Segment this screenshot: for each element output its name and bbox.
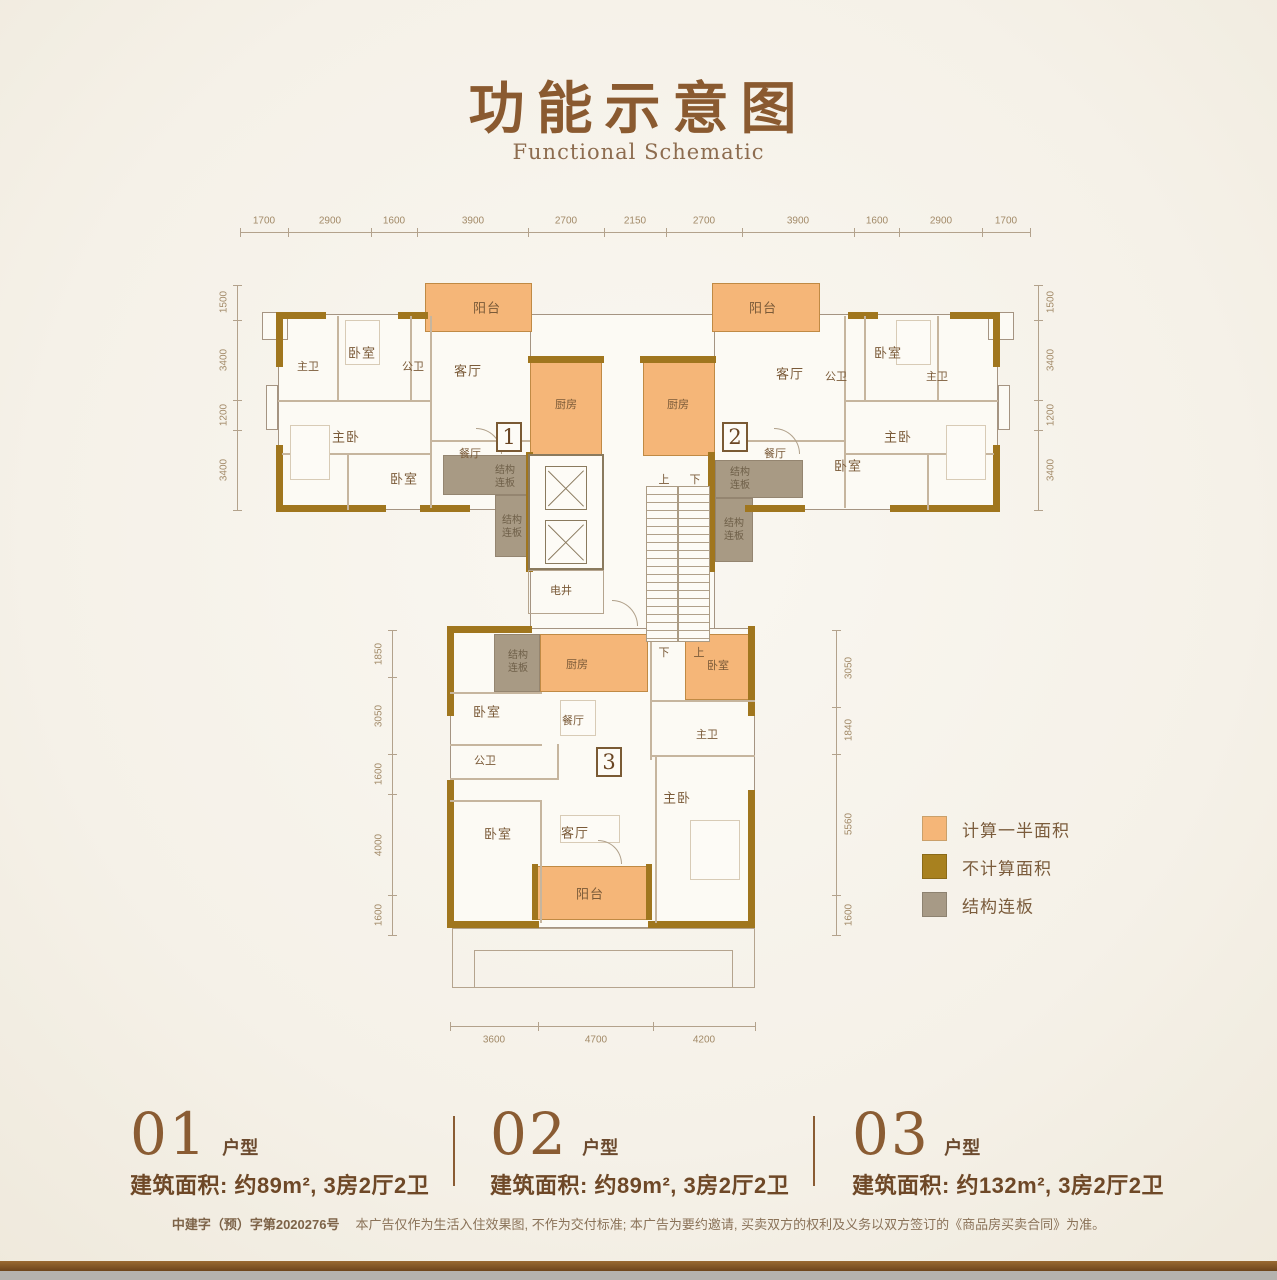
connector-zone: [715, 460, 803, 498]
dimension-line: [237, 285, 238, 510]
connector-label: 结构 连板: [502, 514, 522, 540]
dim-label: 2150: [624, 216, 646, 227]
legend-swatch-connector: [922, 892, 947, 917]
dimension-line: [240, 232, 1030, 233]
page: 功能示意图 Functional Schematic: [0, 0, 1277, 1280]
wall: [993, 312, 1000, 367]
furniture: [946, 425, 986, 480]
room-label-kitchen: 厨房: [555, 396, 577, 412]
wall: [447, 626, 532, 633]
dimension-line: [1038, 285, 1039, 510]
furniture: [690, 820, 740, 880]
page-title: 功能示意图: [0, 64, 1277, 145]
unit-marker-2: 2: [722, 422, 748, 452]
dim-label: 1500: [219, 291, 230, 313]
room-label-dining: 餐厅: [459, 445, 481, 461]
unit-info-01: 01 户型 建筑面积: 约89m², 3房2厅2卫: [130, 1106, 460, 1200]
unit-type-suffix: 户型: [582, 1138, 618, 1158]
wall: [420, 505, 470, 512]
partition: [655, 757, 657, 923]
dim-label: 1200: [219, 404, 230, 426]
partition: [450, 692, 542, 694]
stairs-down-label: 下: [659, 644, 670, 660]
disclaimer-text: 本广告仅作为生活入住效果图, 不作为交付标准; 本广告为要约邀请, 买卖双方的权…: [355, 1214, 1105, 1233]
dim-label: 1840: [844, 719, 855, 741]
dim-label: 1850: [374, 643, 385, 665]
wall: [890, 505, 998, 512]
legend-label-connector: 结构连板: [962, 893, 1034, 918]
stairs-up-label: 上: [659, 471, 670, 487]
partition: [337, 316, 339, 402]
partition: [557, 744, 559, 780]
unit-info-02: 02 户型 建筑面积: 约89m², 3房2厅2卫: [490, 1106, 820, 1200]
room-label-kitchen: 厨房: [566, 656, 588, 672]
room-label-dining: 餐厅: [562, 712, 584, 728]
dim-label: 1600: [844, 904, 855, 926]
unit-area-info: 建筑面积: 约132m², 3房2厅2卫: [852, 1168, 1182, 1200]
dim-label: 3400: [1046, 349, 1057, 371]
unit-area-info: 建筑面积: 约89m², 3房2厅2卫: [490, 1168, 820, 1200]
dim-label: 3050: [374, 705, 385, 727]
dim-label: 2700: [693, 216, 715, 227]
room-label-public-bath: 公卫: [825, 368, 847, 384]
dim-label: 3900: [462, 216, 484, 227]
room-label-bedroom: 卧室: [874, 343, 902, 362]
room-label-master-bedroom: 主卧: [332, 427, 360, 446]
partition: [650, 755, 755, 757]
room-label-bedroom: 卧室: [484, 824, 512, 843]
partition: [844, 316, 846, 508]
dim-label: 1700: [253, 216, 275, 227]
dim-label: 3400: [1046, 459, 1057, 481]
unit-number: 03: [852, 1100, 930, 1168]
stairs-down-label: 下: [690, 471, 701, 487]
room-label-living: 客厅: [454, 361, 482, 380]
wall: [648, 921, 755, 928]
dim-label: 1600: [383, 216, 405, 227]
dim-label: 4000: [374, 834, 385, 856]
wall: [745, 505, 805, 512]
connector-label: 结构 连板: [730, 466, 750, 492]
stair-rail: [677, 486, 679, 642]
kitchen-zone: [540, 634, 648, 692]
partition: [278, 400, 430, 402]
dim-label: 2900: [930, 216, 952, 227]
partition: [540, 800, 542, 923]
wall: [640, 356, 716, 363]
wall: [447, 921, 539, 928]
partition: [650, 700, 755, 702]
partition: [846, 400, 998, 402]
room-label-living: 客厅: [561, 823, 589, 842]
bay-window: [266, 385, 278, 430]
room-label-public-bath: 公卫: [402, 358, 424, 374]
dim-label: 3900: [787, 216, 809, 227]
divider: [813, 1116, 815, 1186]
dimension-ticks: [450, 1022, 451, 1031]
partition: [430, 316, 432, 508]
wall: [848, 312, 878, 319]
bay-window: [998, 385, 1010, 430]
wall: [528, 356, 604, 363]
unit-area-info: 建筑面积: 约89m², 3房2厅2卫: [130, 1168, 460, 1200]
dim-label: 2900: [319, 216, 341, 227]
elevator-icon: [545, 520, 587, 564]
wall: [276, 445, 283, 512]
wall: [447, 780, 454, 928]
room-label-bedroom: 卧室: [390, 469, 418, 488]
room-label-balcony: 阳台: [576, 884, 604, 903]
dim-label: 2700: [555, 216, 577, 227]
bottom-frame-bar: [0, 1261, 1277, 1271]
bottom-edge: [0, 1271, 1277, 1280]
wall: [993, 445, 1000, 512]
connector-label: 结构 连板: [495, 464, 515, 490]
dim-label: 5560: [844, 813, 855, 835]
terrace-outline: [474, 950, 733, 988]
dimension-ticks: [240, 228, 241, 237]
legend-swatch-no-count: [922, 854, 947, 879]
room-label-master-bath: 主卫: [696, 726, 718, 742]
connector-zone: [443, 455, 530, 495]
electric-shaft-label: 电井: [550, 582, 572, 598]
partition: [864, 316, 866, 402]
legend-label-half-area: 计算一半面积: [962, 817, 1070, 842]
unit-number: 02: [490, 1100, 568, 1168]
wall: [532, 864, 538, 920]
wall: [276, 505, 386, 512]
page-subtitle: Functional Schematic: [0, 140, 1277, 164]
room-label-bedroom: 卧室: [707, 657, 729, 673]
furniture: [290, 425, 330, 480]
room-label-living: 客厅: [776, 364, 804, 383]
legend-label-no-count: 不计算面积: [962, 855, 1052, 880]
room-label-master-bedroom: 主卧: [884, 427, 912, 446]
connector-label: 结构 连板: [508, 649, 528, 675]
dim-label: 3050: [844, 657, 855, 679]
room-label-bedroom: 卧室: [834, 456, 862, 475]
wall: [950, 312, 998, 319]
dim-label: 4200: [693, 1035, 715, 1046]
wall: [398, 312, 428, 319]
permit-number: 中建字（预）字第2020276号: [172, 1214, 340, 1233]
room-label-master-bath: 主卫: [297, 358, 319, 374]
dim-label: 1500: [1046, 291, 1057, 313]
room-label-public-bath: 公卫: [474, 752, 496, 768]
unit-number: 01: [130, 1100, 208, 1168]
partition: [927, 453, 929, 510]
dimension-ticks: [233, 285, 242, 286]
dimension-ticks: [832, 630, 841, 631]
unit-info-03: 03 户型 建筑面积: 约132m², 3房2厅2卫: [852, 1106, 1182, 1200]
dimension-ticks: [1034, 285, 1043, 286]
room-label-bedroom: 卧室: [348, 343, 376, 362]
partition: [450, 778, 557, 780]
wall: [276, 312, 326, 319]
elevator-icon: [545, 466, 587, 510]
dimension-line: [450, 1026, 755, 1027]
dimension-line: [836, 630, 837, 935]
wall: [447, 626, 454, 716]
dim-label: 1200: [1046, 404, 1057, 426]
room-label-bedroom: 卧室: [473, 702, 501, 721]
partition: [650, 628, 652, 760]
partition: [347, 453, 349, 510]
dimension-line: [392, 630, 393, 935]
partition: [937, 316, 939, 402]
wall: [748, 790, 755, 928]
dim-label: 3400: [219, 459, 230, 481]
dim-label: 1600: [374, 904, 385, 926]
unit-marker-3: 3: [596, 747, 622, 777]
room-label-kitchen: 厨房: [667, 396, 689, 412]
stairs-up-label: 上: [694, 644, 705, 660]
dim-label: 1600: [374, 763, 385, 785]
legend-swatch-half-area: [922, 816, 947, 841]
dim-label: 4700: [585, 1035, 607, 1046]
wall: [748, 626, 755, 716]
room-label-balcony: 阳台: [749, 298, 777, 317]
partition: [450, 744, 542, 746]
wall: [276, 312, 283, 367]
footer: 中建字（预）字第2020276号 本广告仅作为生活入住效果图, 不作为交付标准;…: [0, 1214, 1277, 1233]
unit-marker-1: 1: [496, 422, 522, 452]
room-label-master-bath: 主卫: [926, 368, 948, 384]
room-label-dining: 餐厅: [764, 445, 786, 461]
connector-label: 结构 连板: [724, 517, 744, 543]
dim-label: 1700: [995, 216, 1017, 227]
dim-label: 1600: [866, 216, 888, 227]
partition: [450, 800, 542, 802]
dimension-ticks: [388, 630, 397, 631]
unit-type-suffix: 户型: [944, 1138, 980, 1158]
wall: [646, 864, 652, 920]
room-label-master-bedroom: 主卧: [663, 788, 691, 807]
dim-label: 3400: [219, 349, 230, 371]
dim-label: 3600: [483, 1035, 505, 1046]
unit-type-suffix: 户型: [222, 1138, 258, 1158]
divider: [453, 1116, 455, 1186]
room-label-balcony: 阳台: [473, 298, 501, 317]
